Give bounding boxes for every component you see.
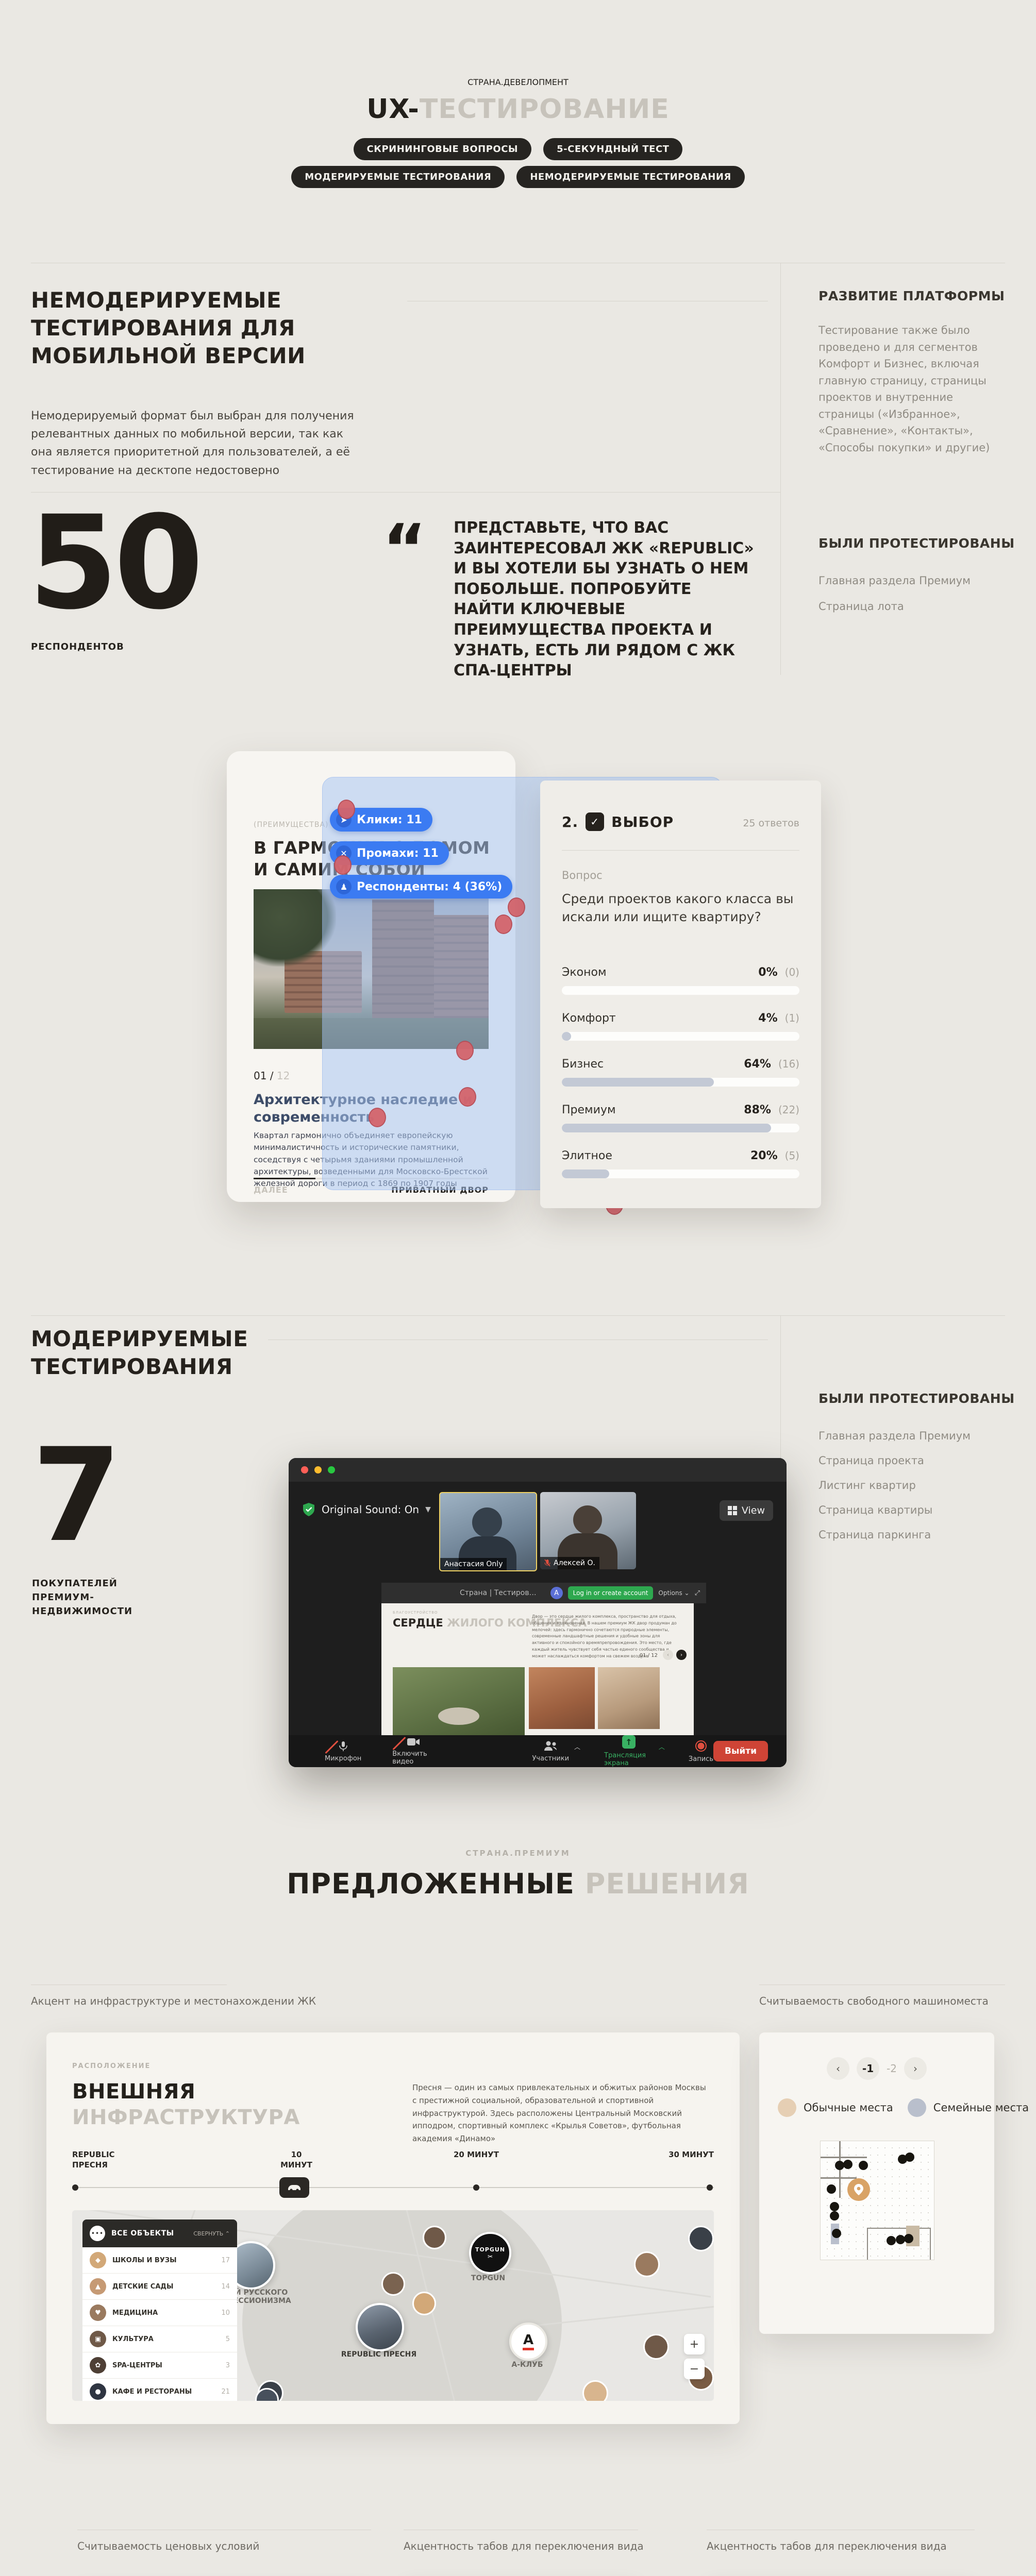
view-button[interactable]: View	[720, 1500, 773, 1521]
tested-item: Главная раздела Премиум	[818, 574, 971, 587]
option-bar	[562, 986, 799, 995]
stat-buyers-value: 7	[32, 1443, 118, 1548]
slider-dot-start	[72, 2184, 78, 2191]
survey-option-row: Бизнес 64% (16)	[562, 1058, 799, 1087]
plan-pin[interactable]	[830, 2211, 839, 2221]
view-label: View	[742, 1505, 765, 1516]
survey-option-row: Комфорт 4% (1)	[562, 1012, 799, 1041]
checkbox-icon: ✓	[586, 812, 604, 831]
page-title-gray: ТЕСТИРОВАНИЕ	[420, 94, 670, 125]
minimize-traffic-icon[interactable]	[314, 1466, 322, 1473]
maximize-traffic-icon[interactable]	[328, 1466, 335, 1473]
phone-next-button[interactable]: ДАЛЕЕ	[254, 1185, 288, 1195]
slider-car-handle[interactable]	[279, 2177, 309, 2198]
caption-rule	[707, 2530, 975, 2530]
screen-photo-small-2	[598, 1667, 660, 1729]
divider	[31, 1315, 1005, 1316]
option-bar	[562, 1124, 799, 1132]
location-pin-icon	[854, 2184, 863, 2195]
plan-pin[interactable]	[904, 2234, 913, 2243]
caption-parking-visibility: Считываемость свободного машиноместа	[759, 1995, 989, 2007]
participant-head	[573, 1505, 602, 1534]
legend-dot-family	[908, 2098, 926, 2117]
screen-pager: 01 / 12	[640, 1653, 658, 1658]
participant-name-2: Алексей О.	[540, 1557, 599, 1569]
screen-section-label: БЛАГОУСТРОЙСТВО	[393, 1611, 438, 1615]
map-pin-small[interactable]	[634, 2251, 660, 2277]
heat-dot	[459, 1087, 476, 1107]
heat-dot	[508, 897, 525, 917]
survey-option-row: Премиум 88% (22)	[562, 1104, 799, 1132]
zoom-toolbar: Микрофон Включить видео Участники ︿ ↑ Тр…	[289, 1735, 787, 1767]
heat-dot	[334, 855, 352, 875]
tag-pill: 5-СЕКУНДНЫЙ ТЕСТ	[543, 138, 682, 160]
kindergarten-icon: ▲	[90, 2278, 106, 2295]
plan-level-current[interactable]: -1	[857, 2057, 879, 2080]
category-row[interactable]: ◆ ШКОЛЫ И ВУЗЫ17	[82, 2247, 237, 2274]
chevron-down-icon: ▼	[425, 1505, 431, 1514]
slider-stop-republic: REPUBLICПРЕСНЯ	[72, 2150, 115, 2170]
survey-options: Эконом 0% (0) Комфорт 4% (1) Бизнес 64%	[562, 966, 799, 1178]
car-icon	[287, 2183, 302, 2192]
option-count: (16)	[778, 1058, 799, 1070]
tested-item: Страница лота	[818, 600, 904, 613]
categories-panel-header[interactable]: ••• ВСЕ ОБЪЕКТЫ СВЕРНУТЬ ⌃	[82, 2219, 237, 2247]
heat-dot	[456, 1041, 474, 1060]
slider-stop-10: 10МИНУТ	[273, 2150, 320, 2170]
participant-tile-2[interactable]: Алексей О.	[540, 1492, 636, 1569]
pager-prev-button[interactable]: ‹	[663, 1650, 673, 1660]
plan-next-button[interactable]: ›	[904, 2057, 927, 2080]
leave-button[interactable]: Выйти	[713, 1741, 768, 1761]
map-zoom-out-button[interactable]: −	[684, 2359, 705, 2379]
option-count: (5)	[785, 1149, 799, 1162]
plan-pin[interactable]	[905, 2153, 914, 2162]
phone-slide-counter: 01 / 12	[254, 1070, 290, 1082]
location-label: РАСПОЛОЖЕНИЕ	[72, 2062, 151, 2070]
caption-rule	[759, 1985, 1005, 1985]
plan-pin[interactable]	[859, 2161, 868, 2170]
category-row[interactable]: ▣ КУЛЬТУРА5	[82, 2326, 237, 2352]
map-pin-small[interactable]	[643, 2334, 669, 2360]
screen-photo-small-1	[529, 1667, 595, 1729]
phone-progress-fill	[254, 1178, 315, 1179]
caption-rule	[31, 1985, 227, 1985]
option-count: (22)	[778, 1104, 799, 1116]
option-percent: 64%	[744, 1058, 771, 1071]
heatmap-respondents-label: Респонденты: 4 (36%)	[357, 880, 502, 893]
quote-text: ПРЕДСТАВЬТЕ, ЧТО ВАС ЗАИНТЕРЕСОВАЛ ЖК «R…	[454, 518, 758, 681]
tested-item: Главная раздела Премиум	[818, 1430, 971, 1442]
section-unmoderated-heading: НЕМОДЕРИРУЕМЫЕ ТЕСТИРОВАНИЯ ДЛЯ МОБИЛЬНО…	[31, 286, 392, 369]
tested-item: Страница квартиры	[818, 1504, 932, 1516]
tested-item: Страница проекта	[818, 1454, 924, 1467]
divider	[31, 263, 1005, 263]
option-bar-fill	[562, 1032, 571, 1041]
slider-dot-20	[473, 2184, 479, 2191]
category-row[interactable]: ▲ ДЕТСКИЕ САДЫ14	[82, 2274, 237, 2300]
shield-check-icon	[302, 1502, 315, 1517]
pager-next-button[interactable]: ›	[676, 1650, 687, 1660]
slider-stop-30: 30 МИНУТ	[669, 2150, 714, 2160]
map-pin-topgun[interactable]: TOPGUN ✂	[469, 2232, 511, 2274]
participant-tile-1[interactable]: Анастасия Only	[439, 1492, 537, 1571]
heatmap-misses-label: Промахи: 11	[357, 847, 439, 860]
participant-head	[472, 1507, 502, 1537]
divider	[562, 850, 799, 851]
fullscreen-icon[interactable]: ⤢	[695, 1589, 700, 1597]
map-pin-aclub[interactable]: А	[509, 2323, 547, 2361]
legend-label-family: Семейные места	[933, 2102, 1029, 2114]
tested-title-1: БЫЛИ ПРОТЕСТИРОВАНЫ	[818, 536, 1015, 551]
map-pin-small[interactable]	[688, 2226, 714, 2251]
caption-prices: Считываемость ценовых условий	[77, 2540, 259, 2552]
option-bar	[562, 1078, 799, 1087]
camera-button[interactable]: Включить видео	[392, 1737, 434, 1766]
solutions-title: ПРЕДЛОЖЕННЫЕ РЕШЕНИЯ	[0, 1868, 1036, 1900]
side-title-platform: РАЗВИТИЕ ПЛАТФОРМЫ	[818, 289, 1005, 303]
shared-screen: БЛАГОУСТРОЙСТВО СЕРДЦЕ ЖИЛОГО КОМПЛЕКСА …	[381, 1603, 694, 1738]
page: СТРАНА.ДЕВЕЛОПМЕНТ UX-ТЕСТИРОВАНИЕ СКРИН…	[0, 0, 1036, 2576]
caption-parking-tabs: Акцентность табов для переключения вида	[707, 2540, 947, 2552]
heading-rule	[268, 1340, 768, 1340]
plan-level-next[interactable]: -2	[887, 2062, 897, 2075]
tag-pill: НЕМОДЕРИРУЕМЫЕ ТЕСТИРОВАНИЯ	[516, 166, 744, 188]
solutions-title-gray: РЕШЕНИЯ	[585, 1868, 749, 1900]
quote-mark: “	[382, 515, 426, 582]
plan-pin[interactable]	[830, 2202, 839, 2211]
page-title-black: UX-	[366, 94, 420, 125]
solutions-brand: СТРАНА.ПРЕМИУМ	[0, 1849, 1036, 1858]
option-bar	[562, 1032, 799, 1041]
map-categories-panel: ••• ВСЕ ОБЪЕКТЫ СВЕРНУТЬ ⌃ ◆ ШКОЛЫ И ВУЗ…	[82, 2219, 237, 2401]
parking-plan-screenshot: ‹ -1 -2 › Обычные места Семейные места	[759, 2032, 994, 2334]
survey-header: 2. ✓ ВЫБОР	[562, 812, 674, 831]
heatmap-respondents-badge: ♟Респонденты: 4 (36%)	[330, 875, 512, 899]
map-pin-small[interactable]	[423, 2226, 446, 2249]
option-count: (0)	[785, 966, 799, 978]
category-row[interactable]: ♥ МЕДИЦИНА10	[82, 2300, 237, 2326]
side-text-platform: Тестирование также было проведено и для …	[818, 322, 994, 456]
section-unmoderated-paragraph: Немодерируемый формат был выбран для пол…	[31, 407, 361, 480]
collapse-control[interactable]: СВЕРНУТЬ ⌃	[193, 2230, 230, 2237]
survey-option-row: Эконом 0% (0)	[562, 966, 799, 995]
browser-tab-title: Страна | Тестиров…	[460, 1589, 537, 1597]
option-bar-fill	[562, 1124, 771, 1132]
culture-icon: ▣	[90, 2331, 106, 2347]
heat-dot	[369, 1108, 386, 1127]
infrastructure-map[interactable]: МУЗЕЙ РУССКОГО ИМПРЕССИОНИЗМА TOPGUN ✂ T…	[72, 2210, 714, 2401]
map-pin-republic-label: REPUBLIC ПРЕСНЯ	[330, 2350, 428, 2359]
tag-pill: СКРИНИНГОВЫЕ ВОПРОСЫ	[354, 138, 532, 160]
caption-rule	[77, 2530, 371, 2530]
record-button[interactable]: Запись	[689, 1740, 713, 1763]
plan-pagination: ‹ -1 -2 ›	[759, 2057, 994, 2080]
caption-apartment-tabs: Акцентность табов для переключения вида	[404, 2540, 644, 2552]
slide-current: 01 /	[254, 1070, 274, 1082]
page-title: UX-ТЕСТИРОВАНИЕ	[0, 94, 1036, 125]
options-menu[interactable]: Options ⌄	[658, 1589, 689, 1597]
option-bar	[562, 1170, 799, 1178]
phone-section-tag: (ПРЕИМУЩЕСТВА)	[254, 821, 329, 829]
avatar[interactable]: А	[550, 1587, 563, 1599]
screen-photo-terrace	[393, 1667, 525, 1738]
plan-prev-button[interactable]: ‹	[827, 2057, 849, 2080]
medicine-icon: ♥	[90, 2304, 106, 2321]
parking-floor-plan[interactable]	[820, 2141, 934, 2260]
plan-pin[interactable]	[843, 2160, 853, 2169]
tested-item: Страница паркинга	[818, 1529, 931, 1541]
survey-answers-count: 25 ответов	[743, 818, 799, 829]
stat-respondents-label: РЕСПОНДЕНТОВ	[31, 641, 124, 652]
share-screen-button[interactable]: ↑ Трансляция экрана	[604, 1735, 654, 1767]
map-pin-aclub-label: А-КЛУБ	[504, 2361, 550, 2369]
tags-row-2: МОДЕРИРУЕМЫЕ ТЕСТИРОВАНИЯ НЕМОДЕРИРУЕМЫЕ…	[0, 166, 1036, 188]
slider-stop-20: 20 МИНУТ	[454, 2150, 499, 2160]
scissors-icon: ✂	[488, 2253, 493, 2260]
plan-pin[interactable]	[827, 2184, 836, 2194]
participants-button[interactable]: Участники	[532, 1740, 570, 1762]
infrastructure-paragraph: Пресня — один из самых привлекательных и…	[412, 2081, 711, 2145]
all-objects-icon: •••	[90, 2226, 105, 2241]
map-zoom-in-button[interactable]: +	[684, 2334, 705, 2354]
survey-type: ВЫБОР	[611, 814, 674, 831]
map-pin-small[interactable]	[412, 2292, 436, 2315]
slider-track[interactable]	[72, 2187, 714, 2188]
slide-total: 12	[277, 1070, 290, 1082]
categories-panel-title: ВСЕ ОБЪЕКТЫ	[111, 2229, 187, 2238]
plan-legend: Обычные места Семейные места	[778, 2098, 1036, 2117]
participants-icon	[543, 1740, 558, 1752]
plan-wall	[821, 2157, 867, 2158]
mic-button[interactable]: Микрофон	[325, 1740, 361, 1762]
participant-name-1: Анастасия Only	[440, 1558, 507, 1570]
survey-option-row: Элитное 20% (5)	[562, 1149, 799, 1178]
tag-pill: МОДЕРИРУЕМЫЕ ТЕСТИРОВАНИЯ	[291, 166, 505, 188]
option-percent: 0%	[758, 966, 777, 979]
option-bar-fill	[562, 1170, 609, 1178]
camera-icon	[407, 1737, 420, 1747]
infrastructure-screenshot: РАСПОЛОЖЕНИЕ ВНЕШНЯЯ ИНФРАСТРУКТУРА Прес…	[46, 2032, 740, 2424]
window-titlebar	[289, 1458, 787, 1482]
option-percent: 88%	[744, 1104, 771, 1116]
mic-icon	[338, 1740, 349, 1752]
survey-panel: 2. ✓ ВЫБОР 25 ответов Вопрос Среди проек…	[540, 781, 821, 1208]
plan-pin[interactable]	[832, 2229, 841, 2238]
divider-vertical	[780, 263, 781, 675]
stat-respondents-value: 50	[28, 510, 199, 616]
plan-wall	[821, 2177, 857, 2179]
option-label: Бизнес	[562, 1058, 604, 1071]
cafe-icon: ●	[90, 2383, 106, 2400]
slider-dot-30	[707, 2184, 713, 2191]
brand: СТРАНА.ДЕВЕЛОПМЕНТ	[0, 77, 1036, 87]
spa-icon: ✿	[90, 2357, 106, 2374]
option-percent: 20%	[750, 1149, 778, 1162]
chevron-up-icon[interactable]: ︿	[574, 1742, 580, 1751]
survey-question: Среди проектов какого класса вы искали и…	[562, 890, 794, 926]
caption-infrastructure: Акцент на инфраструктуре и местонахожден…	[31, 1995, 316, 2007]
school-icon: ◆	[90, 2252, 106, 2268]
chevron-up-icon[interactable]: ︿	[659, 1742, 665, 1751]
survey-number: 2.	[562, 814, 578, 831]
radius-circle	[242, 2210, 562, 2401]
aclub-red-bar	[523, 2348, 534, 2350]
option-percent: 4%	[758, 1012, 777, 1025]
record-icon	[695, 1740, 707, 1752]
legend-label-regular: Обычные места	[804, 2102, 893, 2114]
original-sound-badge[interactable]: Original Sound: On ▼	[302, 1502, 431, 1517]
tested-title-2: БЫЛИ ПРОТЕСТИРОВАНЫ	[818, 1391, 1015, 1406]
infrastructure-heading-2: ИНФРАСТРУКТУРА	[72, 2106, 300, 2129]
close-traffic-icon[interactable]	[301, 1466, 308, 1473]
muted-slash	[325, 1740, 338, 1753]
map-pin-topgun-label: TOPGUN	[455, 2274, 522, 2282]
option-label: Комфорт	[562, 1012, 616, 1025]
heat-dot	[495, 914, 512, 934]
option-bar-fill	[562, 1078, 714, 1087]
map-pin-small[interactable]	[582, 2380, 608, 2401]
infrastructure-heading-1: ВНЕШНЯЯ	[72, 2080, 195, 2104]
plan-pin[interactable]	[887, 2236, 896, 2245]
section-moderated-heading: МОДЕРИРУЕМЫЕ ТЕСТИРОВАНИЯ	[31, 1325, 278, 1381]
zoom-call-window: Original Sound: On ▼ View Анастасия Only…	[289, 1458, 787, 1767]
heading-rule	[407, 301, 768, 301]
category-row[interactable]: ✿ SPA-ЦЕНТРЫ3	[82, 2352, 237, 2379]
login-button[interactable]: Log in or create account	[568, 1586, 654, 1600]
tags-row-1: СКРИНИНГОВЫЕ ВОПРОСЫ 5-СЕКУНДНЫЙ ТЕСТ	[0, 138, 1036, 160]
camera-off-slash	[393, 1737, 406, 1750]
muted-mic-icon	[544, 1559, 550, 1567]
shared-browser-bar: Страна | Тестиров… А Log in or create ac…	[381, 1583, 706, 1603]
map-pin-republic[interactable]	[356, 2303, 404, 2351]
category-row[interactable]: ● КАФЕ И РЕСТОРАНЫ21	[82, 2379, 237, 2401]
share-screen-icon: ↑	[622, 1735, 636, 1749]
original-sound-label: Original Sound: On	[322, 1503, 419, 1516]
option-label: Элитное	[562, 1149, 612, 1162]
caption-rule	[404, 2530, 638, 2530]
screen-paragraph: Двор — это сердце жилого комплекса, прос…	[532, 1614, 681, 1660]
heat-dot	[338, 800, 355, 819]
tested-item: Листинг квартир	[818, 1479, 916, 1492]
survey-question-label: Вопрос	[562, 869, 603, 882]
heatmap-clicks-label: Клики: 11	[357, 814, 422, 826]
option-label: Премиум	[562, 1104, 616, 1116]
terrace-table	[438, 1707, 479, 1725]
map-pin-small[interactable]	[381, 2272, 405, 2296]
selected-spot-pin[interactable]	[847, 2178, 870, 2201]
grid-view-icon	[728, 1506, 737, 1515]
person-icon: ♟	[336, 879, 352, 894]
solutions-title-black: ПРЕДЛОЖЕННЫЕ	[287, 1868, 575, 1900]
option-count: (1)	[785, 1012, 799, 1024]
stat-buyers-label: ПОКУПАТЕЛЕЙ ПРЕМИУМ-НЕДВИЖИМОСТИ	[32, 1577, 156, 1618]
legend-dot-regular	[778, 2098, 796, 2117]
option-label: Эконом	[562, 966, 607, 979]
map-road	[537, 2302, 714, 2326]
